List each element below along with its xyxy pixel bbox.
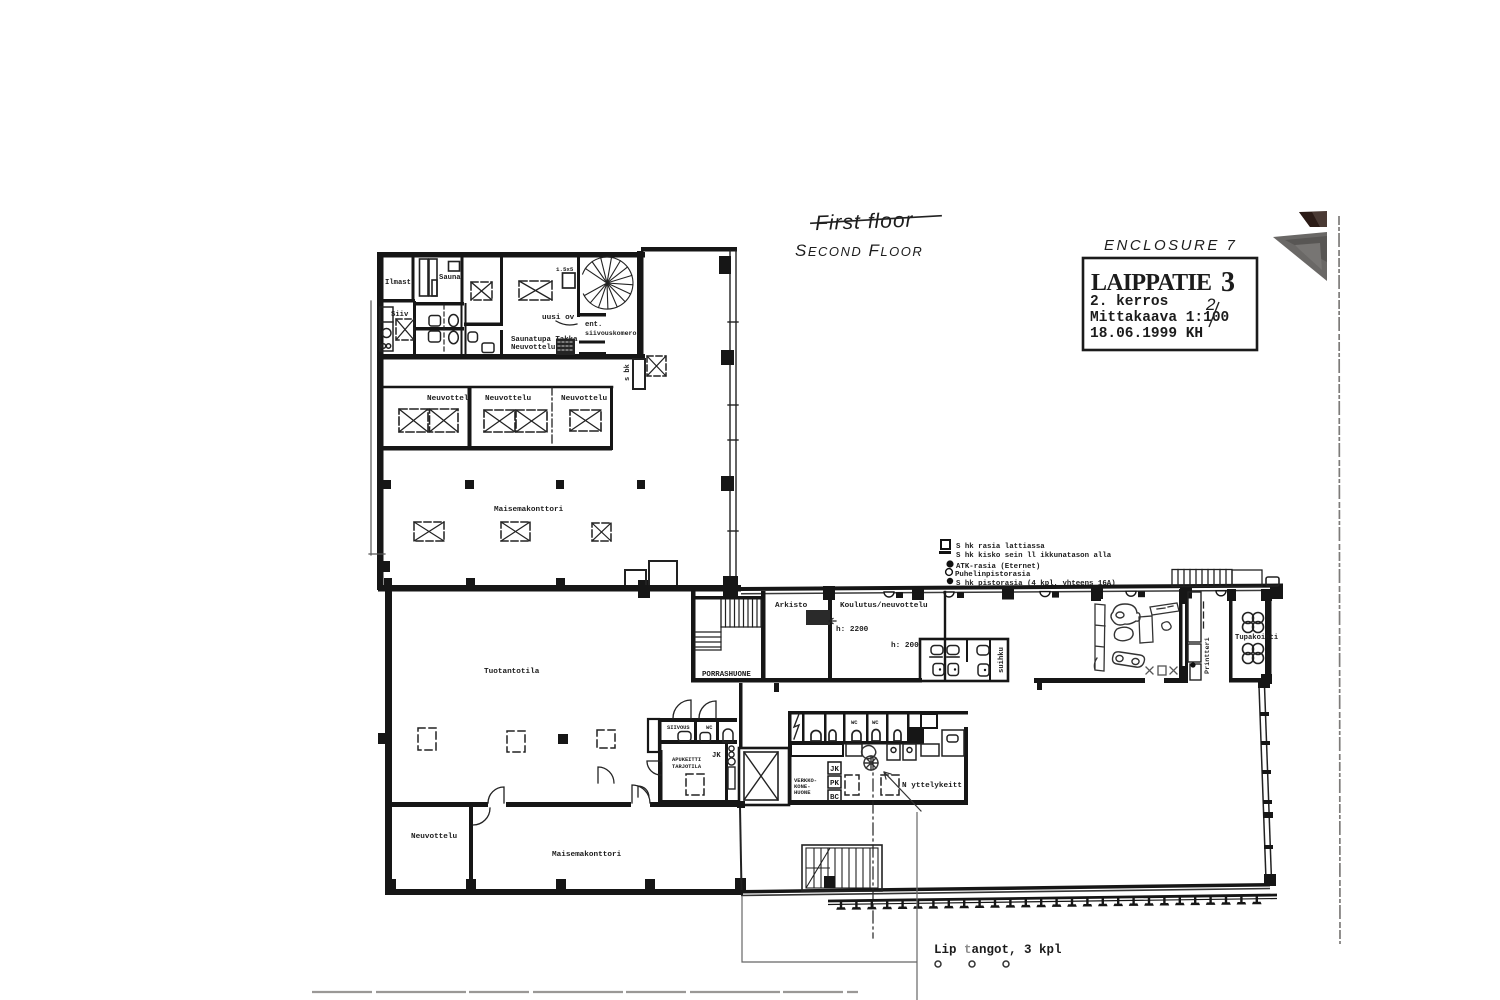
svg-text:S hk kisko sein ll ikkunataso: S hk kisko sein ll ikkunatason alla [956,552,1112,560]
svg-text:SECOND FLOOR: SECOND FLOOR [795,241,923,260]
svg-text:Neuvottelu: Neuvottelu [561,395,608,403]
svg-text:h: 2200: h: 2200 [836,626,869,634]
svg-text:Neuvottelu: Neuvottelu [511,344,555,352]
svg-text:Maisemakonttori: Maisemakonttori [552,851,622,859]
svg-text:Tuotantotila: Tuotantotila [484,668,540,676]
svg-text:Printteri: Printteri [1204,637,1212,674]
svg-text:3: 3 [1221,267,1235,298]
svg-text:APUKEITTI: APUKEITTI [672,757,701,763]
svg-text:HUONE: HUONE [794,789,811,796]
svg-text:Sauna: Sauna [439,274,461,282]
svg-text:ENCLOSURE 7: ENCLOSURE 7 [1104,237,1237,254]
svg-text:TARJOTILA: TARJOTILA [672,764,702,770]
svg-text:ATK-rasia (Eternet): ATK-rasia (Eternet) [956,563,1040,571]
svg-text:PK: PK [830,780,840,788]
svg-text:Lip tangot, 3 kpl: Lip tangot, 3 kpl [934,943,1062,957]
svg-text:1.5x5: 1.5x5 [556,266,574,273]
svg-text:LAIPPATIE: LAIPPATIE [1091,270,1212,296]
svg-text:Maisemakonttori: Maisemakonttori [494,506,564,514]
svg-text:Neuvottelu: Neuvottelu [411,833,458,841]
svg-text:suihku: suihku [998,647,1006,673]
svg-text:Arkisto: Arkisto [775,602,808,610]
svg-text:BC: BC [830,794,840,802]
svg-text:Mittakaava 1:100: Mittakaava 1:100 [1090,310,1229,326]
svg-text:JK: JK [830,766,840,774]
svg-text:N yttelykeitt: N yttelykeitt [902,782,962,790]
svg-text:ent.: ent. [585,321,602,329]
svg-text:uusi ov: uusi ov [542,314,575,322]
svg-text:SIIVOUS: SIIVOUS [667,725,690,731]
svg-text:Neuvottelu: Neuvottelu [485,395,532,403]
svg-text:PORRASHUONE: PORRASHUONE [702,671,751,679]
svg-text:WC: WC [706,725,713,731]
svg-text:2. kerros: 2. kerros [1090,294,1168,310]
svg-text:18.06.1999 KH: 18.06.1999 KH [1090,326,1203,342]
svg-text:Ilmast: Ilmast [385,279,411,287]
svg-text:Neuvottel: Neuvottel [427,395,469,403]
svg-text:s bk: s bk [624,364,632,381]
svg-text:h: 200: h: 200 [891,642,919,650]
svg-text:siivouskomero: siivouskomero [585,330,636,337]
svg-text:Koulutus/neuvottelu: Koulutus/neuvottelu [840,602,928,610]
svg-text:WC: WC [872,719,879,726]
svg-text:Tupakointi: Tupakointi [1235,634,1279,642]
svg-text:S hk rasia lattiassa: S hk rasia lattiassa [956,543,1045,551]
svg-text:JK: JK [712,752,721,760]
svg-text:WC: WC [851,719,858,726]
svg-text:Puhelinpistorasia: Puhelinpistorasia [955,571,1031,579]
